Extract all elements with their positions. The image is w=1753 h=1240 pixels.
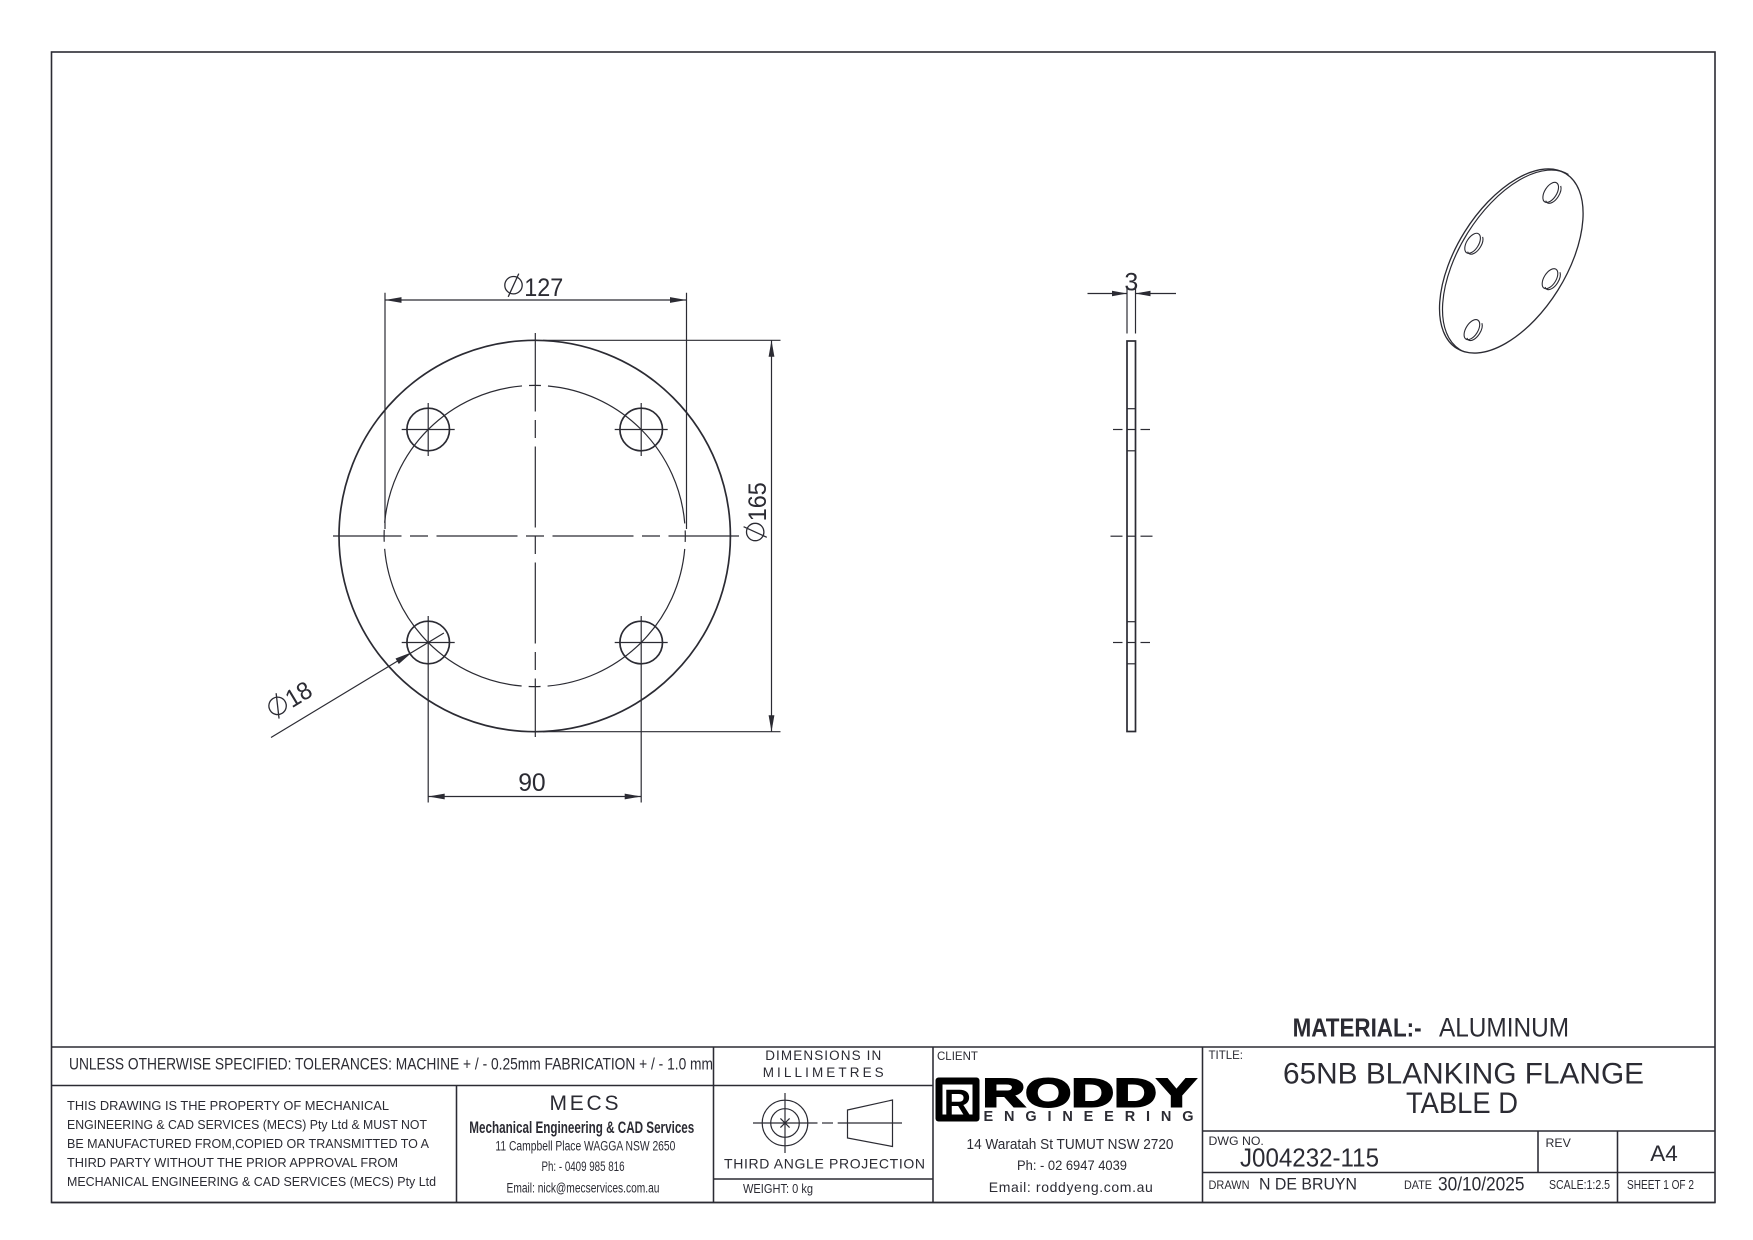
- svg-text:127: 127: [524, 274, 563, 302]
- svg-text:65NB BLANKING FLANGE: 65NB BLANKING FLANGE: [1283, 1057, 1644, 1090]
- svg-text:Ph: - 02 6947 4039: Ph: - 02 6947 4039: [1017, 1157, 1127, 1173]
- svg-text:A4: A4: [1650, 1141, 1678, 1166]
- svg-text:SHEET 1 OF 2: SHEET 1 OF 2: [1627, 1178, 1694, 1192]
- svg-text:DIMENSIONS IN: DIMENSIONS IN: [765, 1048, 881, 1063]
- svg-text:DRAWN: DRAWN: [1209, 1180, 1250, 1192]
- svg-text:THIRD ANGLE PROJECTION: THIRD ANGLE PROJECTION: [724, 1156, 925, 1172]
- svg-text:ALUMINUM: ALUMINUM: [1439, 1013, 1569, 1043]
- svg-text:THIRD PARTY WITHOUT THE PRIOR: THIRD PARTY WITHOUT THE PRIOR APPROVAL F…: [67, 1156, 398, 1170]
- svg-text:14 Waratah St TUMUT NSW 2720: 14 Waratah St TUMUT NSW 2720: [967, 1137, 1174, 1153]
- svg-text:TABLE D: TABLE D: [1406, 1087, 1518, 1120]
- svg-text:CLIENT: CLIENT: [937, 1051, 978, 1063]
- svg-text:N DE BRUYN: N DE BRUYN: [1259, 1175, 1357, 1194]
- svg-text:Ph: - 0409 985 816: Ph: - 0409 985 816: [542, 1159, 625, 1174]
- svg-text:11 Campbell Place WAGGA NSW 26: 11 Campbell Place WAGGA NSW 2650: [495, 1139, 675, 1154]
- svg-text:WEIGHT: 0 kg: WEIGHT: 0 kg: [743, 1182, 813, 1196]
- svg-text:90: 90: [518, 769, 546, 797]
- svg-text:Email: roddyeng.com.au: Email: roddyeng.com.au: [989, 1179, 1153, 1195]
- svg-text:J004232-115: J004232-115: [1240, 1143, 1379, 1173]
- svg-text:R: R: [944, 1083, 971, 1125]
- svg-text:3: 3: [1124, 269, 1138, 297]
- svg-text:Mechanical Engineering & CAD S: Mechanical Engineering & CAD Services: [469, 1119, 694, 1137]
- svg-text:BE MANUFACTURED FROM,COPIED OR: BE MANUFACTURED FROM,COPIED OR TRANSMITT…: [67, 1137, 430, 1151]
- svg-text:MECHANICAL ENGINEERING & CAD S: MECHANICAL ENGINEERING & CAD SERVICES (M…: [67, 1175, 436, 1189]
- svg-text:DATE: DATE: [1404, 1180, 1432, 1192]
- svg-text:ENGINEERING & CAD SERVICES (ME: ENGINEERING & CAD SERVICES (MECS) Pty Lt…: [67, 1118, 427, 1132]
- svg-text:REV: REV: [1546, 1136, 1572, 1150]
- svg-text:THIS DRAWING IS THE PROPERTY O: THIS DRAWING IS THE PROPERTY OF MECHANIC…: [67, 1099, 389, 1113]
- svg-text:SCALE:1:2.5: SCALE:1:2.5: [1549, 1178, 1610, 1192]
- svg-text:TITLE:: TITLE:: [1209, 1050, 1244, 1062]
- svg-text:UNLESS OTHERWISE SPECIFIED: TO: UNLESS OTHERWISE SPECIFIED: TOLERANCES: …: [69, 1055, 713, 1074]
- svg-text:Email: nick@mecservices.com.au: Email: nick@mecservices.com.au: [507, 1181, 660, 1196]
- svg-text:MATERIAL:-: MATERIAL:-: [1293, 1013, 1422, 1043]
- svg-text:30/10/2025: 30/10/2025: [1438, 1175, 1525, 1196]
- svg-text:165: 165: [744, 482, 772, 521]
